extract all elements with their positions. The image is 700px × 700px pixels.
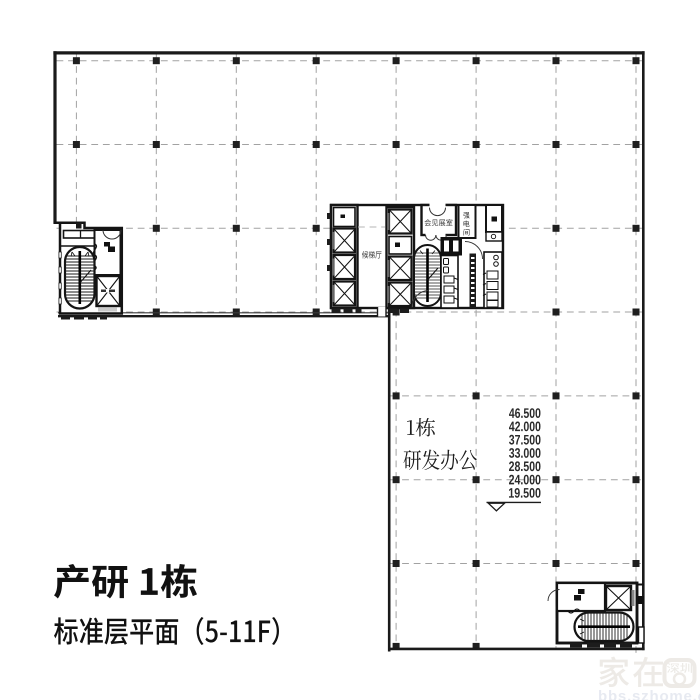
svg-text:bbs.szhome.com: bbs.szhome.com	[598, 688, 700, 700]
